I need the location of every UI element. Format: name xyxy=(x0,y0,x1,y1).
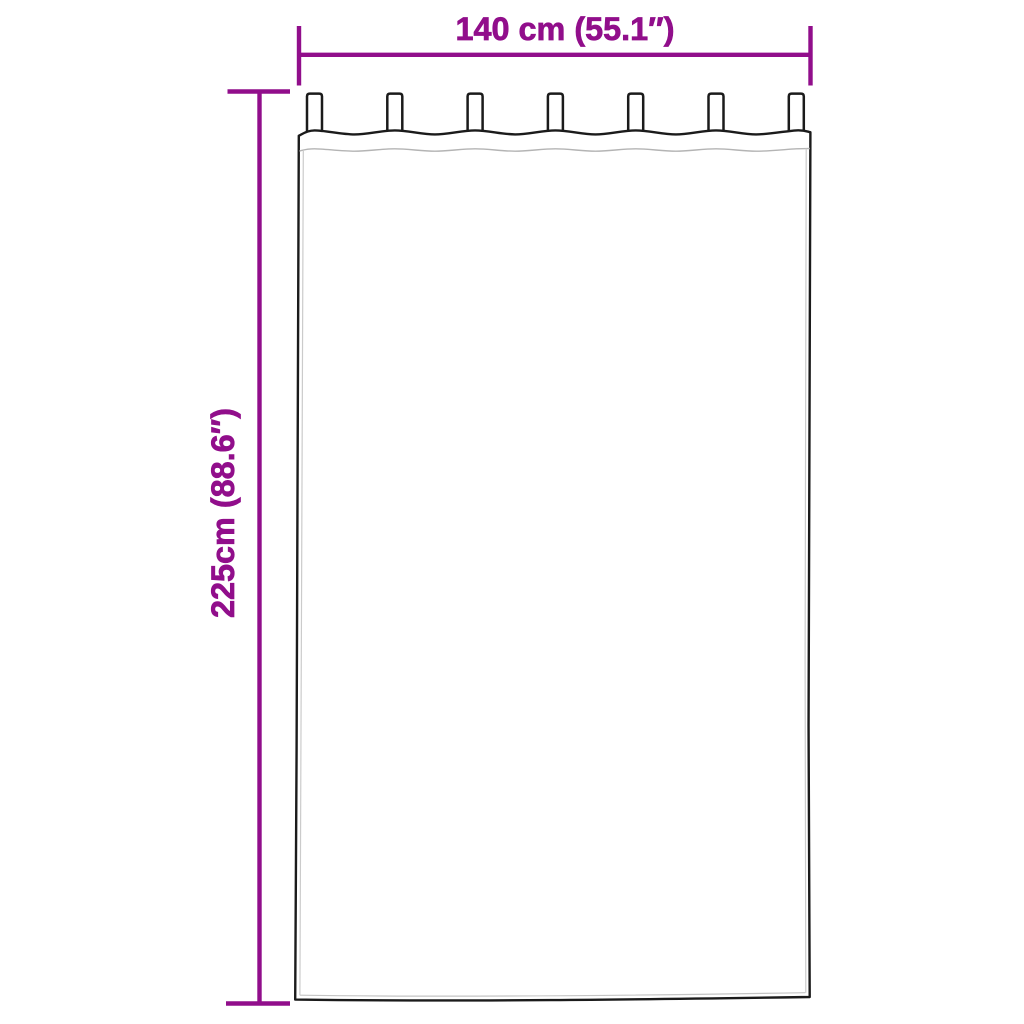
svg-text:225cm (88.6″): 225cm (88.6″) xyxy=(205,408,241,618)
svg-text:140 cm (55.1″): 140 cm (55.1″) xyxy=(456,11,675,47)
